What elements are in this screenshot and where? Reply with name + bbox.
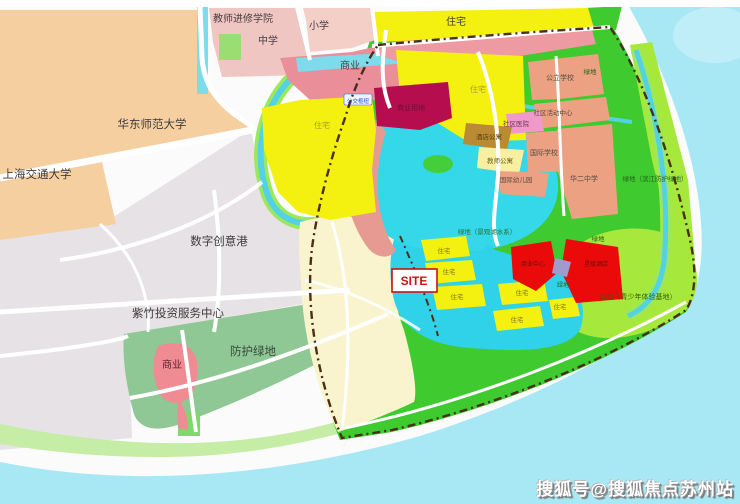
map-label: 华二中学 — [570, 174, 598, 183]
map-label: 教师公寓 — [487, 156, 513, 165]
map-label: 绿地 — [584, 67, 598, 76]
map-label: 社区活动中心 — [534, 108, 574, 117]
map-label: 住宅 — [554, 302, 568, 311]
map-label: 住宅 — [451, 292, 465, 301]
map-label: 绿地（青少年体验基地） — [600, 292, 677, 301]
map-label: 中学 — [258, 34, 278, 47]
map-label: 华东师范大学 — [118, 117, 187, 131]
parcel-green-rect — [219, 34, 241, 60]
map-label: 国际学校 — [530, 148, 558, 157]
map-label: 防护绿地 — [230, 344, 276, 358]
map-label: 住宅 — [314, 120, 330, 130]
map-label: 公交枢纽 — [347, 97, 370, 105]
map-label: 商业用地 — [397, 103, 425, 112]
map-label: 绿地（景观湖水系） — [458, 227, 517, 236]
map-canvas: SITE 教师进修学院中学小学商业住宅华东师范大学上海交通大学数字创意港紫竹投资… — [0, 0, 740, 504]
map-label: 住宅 — [470, 84, 486, 94]
map-label: 酒店公寓 — [476, 132, 502, 141]
map-label: 绿地（滨江防护绿地） — [623, 174, 688, 183]
map-label: 公立学校 — [546, 73, 574, 82]
region-lake-island — [423, 155, 453, 173]
map-label: 商业 — [162, 358, 182, 371]
map-label: 绿地 — [592, 234, 606, 243]
watermark: 搜狐号@搜狐焦点苏州站 — [536, 475, 734, 500]
map-label: 住宅 — [516, 288, 530, 297]
map-label: 住宅 — [438, 246, 452, 255]
planning-map: SITE 教师进修学院中学小学商业住宅华东师范大学上海交通大学数字创意港紫竹投资… — [0, 0, 740, 504]
map-label: 住宅 — [446, 15, 466, 28]
map-label: 国际幼儿园 — [500, 175, 533, 184]
map-label: 绿地 — [557, 281, 569, 289]
map-label: 商业 — [340, 59, 360, 72]
map-label: 上海交通大学 — [3, 167, 72, 181]
map-label: 教师进修学院 — [213, 12, 273, 25]
map-label: 星级酒店 — [584, 260, 608, 268]
map-label: 紫竹投资服务中心 — [132, 306, 224, 320]
site-marker: SITE — [392, 269, 437, 292]
site-label: SITE — [401, 274, 428, 288]
map-label: 社区医院 — [503, 119, 530, 128]
map-label: 数字创意港 — [190, 234, 248, 248]
map-label: 商业中心 — [521, 260, 545, 268]
map-label: 住宅 — [511, 315, 525, 324]
map-label: 小学 — [309, 19, 329, 32]
parcel-kindergarten — [497, 171, 549, 197]
map-label: 住宅 — [443, 267, 457, 276]
